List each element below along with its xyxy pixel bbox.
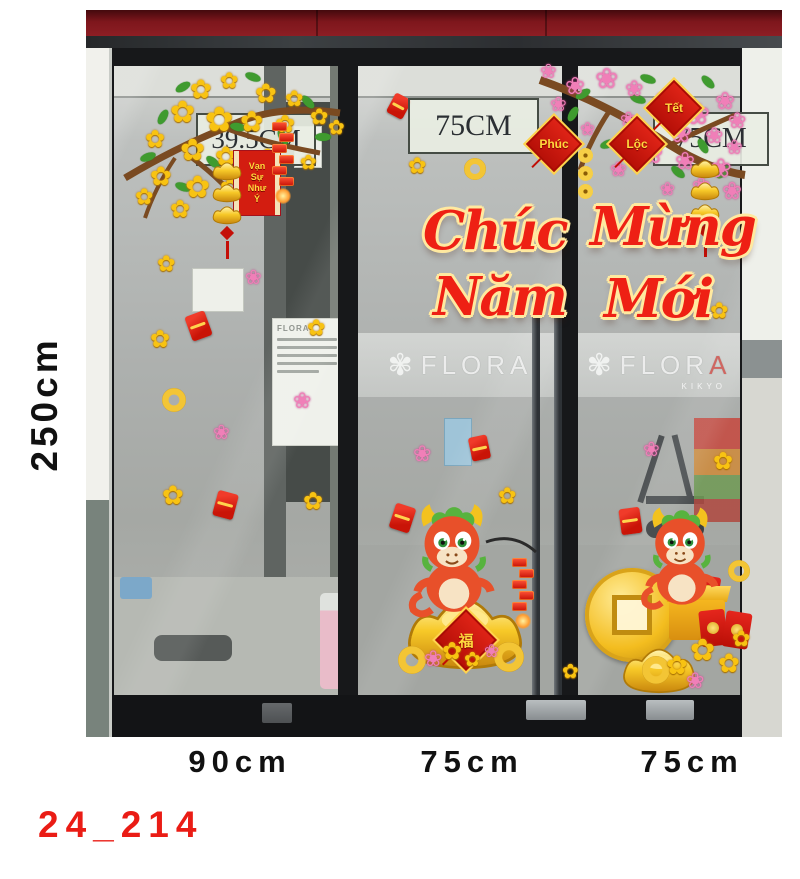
scroll-line: Như <box>248 183 267 194</box>
width-label-left-panel: 90cm <box>160 744 320 780</box>
gold-ingot-icon <box>210 204 244 225</box>
yellow-flower-sticker: ✿ <box>162 482 184 508</box>
pink-flower-sticker: ❀ <box>293 390 311 412</box>
yellow-flower-sticker: ✿ <box>170 98 195 128</box>
gold-ingot-icon <box>210 182 244 203</box>
pink-flower-sticker: ❀ <box>245 268 262 288</box>
greeting-moi: Mới <box>604 268 712 330</box>
yellow-flower-sticker: ✿ <box>240 108 263 136</box>
pink-flower-sticker: ❀ <box>728 110 746 132</box>
pink-flower-sticker: ❀ <box>625 78 643 100</box>
gold-coin-sticker <box>162 388 186 412</box>
scroll-line: Sự <box>251 172 264 183</box>
pink-flower-sticker: ❀ <box>565 75 585 99</box>
yellow-flower-sticker: ✿ <box>285 88 303 110</box>
red-envelope-sticker <box>468 434 492 461</box>
yellow-flower-sticker: ✿ <box>220 70 238 92</box>
knot-icon <box>220 226 234 240</box>
greeting-mung: Mừng <box>590 196 755 258</box>
pink-flower-sticker: ❀ <box>213 423 230 443</box>
yellow-flower-sticker: ✿ <box>303 490 323 514</box>
spark-icon <box>275 188 291 204</box>
yellow-flower-sticker: ✿ <box>170 198 190 222</box>
yellow-flower-sticker: ✿ <box>180 136 205 166</box>
firecracker-string <box>272 122 294 204</box>
gold-ingot-icon <box>688 158 722 179</box>
width-label-middle-panel: 75cm <box>392 744 552 780</box>
yellow-flower-sticker: ✿ <box>710 300 728 322</box>
greeting-nam: Năm <box>433 266 566 328</box>
gold-ingot-icon <box>210 160 244 181</box>
yellow-flower-sticker: ✿ <box>157 253 175 275</box>
yellow-flower-sticker: ✿ <box>310 106 328 128</box>
yellow-flower-sticker: ✿ <box>150 328 170 352</box>
width-label-right-panel: 75cm <box>612 744 772 780</box>
pink-flower-sticker: ❀ <box>540 62 557 82</box>
pink-flower-sticker: ❀ <box>595 65 618 93</box>
product-code: 24_214 <box>38 804 203 846</box>
scroll-line: Ý <box>254 194 260 205</box>
scroll-line: Vạn <box>249 161 266 172</box>
pink-flower-sticker: ❀ <box>705 125 723 147</box>
greeting-chuc: Chúc <box>423 200 567 262</box>
dragon-sticker-left <box>400 498 504 620</box>
pink-flower-sticker: ❀ <box>413 443 431 465</box>
red-envelope-sticker <box>212 490 239 520</box>
yellow-flower-sticker: ✿ <box>307 317 325 339</box>
pink-flower-sticker: ❀ <box>643 440 660 460</box>
gold-ingot-string <box>210 160 244 259</box>
pink-flower-sticker: ❀ <box>550 95 567 115</box>
product-photo-card: FLORA ✾ FLORA ✾ FLORA <box>0 0 800 879</box>
gold-coin-string <box>578 148 593 199</box>
yellow-flower-sticker: ✿ <box>408 155 426 177</box>
yellow-flower-sticker: ✿ <box>205 103 234 137</box>
yellow-flower-sticker: ✿ <box>255 80 277 106</box>
decal-layer: 39.5CM 75CM 75CM ✿✿✿✿✿✿✿✿✿✿✿✿✿✿✿✿✿✿✿✿✿ ❀… <box>86 10 782 737</box>
tassel-icon <box>226 241 229 259</box>
yellow-flower-sticker: ✿ <box>328 118 345 138</box>
yellow-flower-sticker: ✿ <box>562 662 579 682</box>
yellow-flower-sticker: ✿ <box>300 153 317 173</box>
yellow-flower-sticker: ✿ <box>135 186 153 208</box>
red-envelope-sticker <box>184 310 212 342</box>
height-dimension-label: 250cm <box>24 321 66 487</box>
yellow-flower-sticker: ✿ <box>145 128 165 152</box>
pink-flower-sticker: ❀ <box>726 138 743 158</box>
pink-flower-sticker: ❀ <box>580 120 595 138</box>
dragon-sticker-right <box>634 502 726 612</box>
storefront-photo: FLORA ✾ FLORA ✾ FLORA <box>86 10 782 737</box>
yellow-flower-sticker: ✿ <box>713 450 733 474</box>
gold-coin-sticker <box>398 646 426 674</box>
